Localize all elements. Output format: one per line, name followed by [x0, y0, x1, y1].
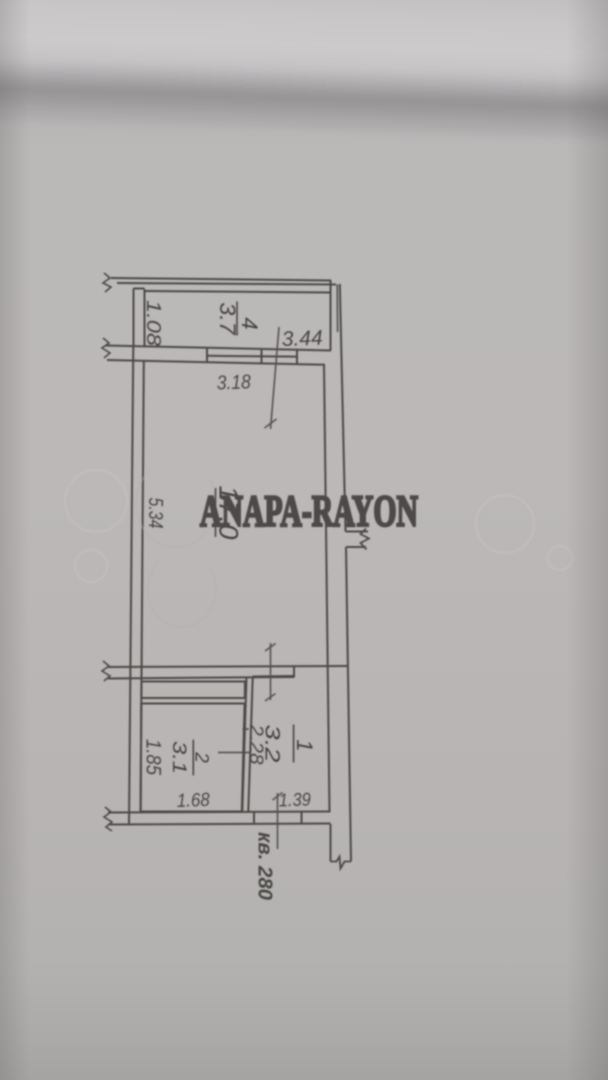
svg-text:3.1: 3.1 [168, 741, 189, 774]
svg-text:кв. 280: кв. 280 [254, 832, 276, 900]
svg-text:1.39: 1.39 [278, 788, 311, 810]
svg-text:1: 1 [292, 739, 317, 751]
svg-text:3.18: 3.18 [216, 371, 251, 394]
svg-text:1.68: 1.68 [176, 790, 210, 812]
svg-text:5.34: 5.34 [144, 498, 166, 529]
svg-text:1.85: 1.85 [142, 739, 165, 775]
svg-text:ANAPA-RAYON: ANAPA-RAYON [200, 487, 418, 536]
svg-text:3.7: 3.7 [215, 303, 240, 336]
svg-text:3.44: 3.44 [281, 327, 323, 351]
svg-text:1.08: 1.08 [142, 300, 164, 346]
svg-text:3.2: 3.2 [261, 725, 284, 763]
